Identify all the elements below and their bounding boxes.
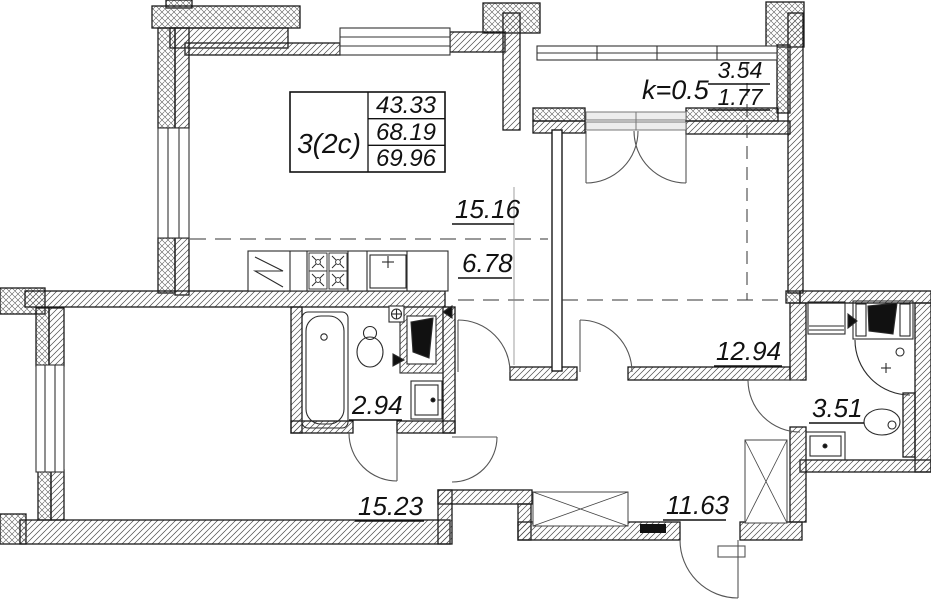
partition-wall — [552, 130, 562, 371]
toilet-icon — [357, 327, 383, 368]
entrance-threshold — [640, 524, 666, 533]
kitchen-counter — [248, 251, 448, 291]
wardrobes — [533, 440, 787, 526]
bedroom-door — [580, 320, 632, 372]
label-shower-room-area: 3.51 — [812, 393, 863, 423]
wardrobe-hall — [533, 492, 628, 526]
bathtub-icon — [302, 312, 348, 428]
corridor-door — [458, 320, 510, 372]
balcony-coefficient: k=0.5 — [642, 75, 710, 105]
balcony-area-reduced: 1.77 — [718, 84, 764, 110]
label-bathroom-area: 2.94 — [351, 390, 403, 420]
kitchen-sink-icon — [370, 255, 406, 288]
balcony-area-full: 3.54 — [718, 57, 763, 83]
title-block: 3(2c) 43.33 68.19 69.96 — [290, 92, 445, 172]
vent-symbol — [389, 306, 404, 322]
toilet-icon — [864, 409, 900, 435]
wardrobe-entry — [745, 440, 787, 523]
label-kitchen-living-area: 15.16 — [455, 194, 521, 224]
window-living-left — [36, 365, 64, 472]
living-area-value: 43.33 — [376, 92, 437, 119]
label-hallway-area: 11.63 — [666, 490, 730, 520]
shower-room-door — [748, 380, 800, 432]
label-bedroom-area: 12.94 — [716, 336, 781, 366]
total-area-value: 69.96 — [376, 145, 437, 172]
entrance-door — [680, 540, 745, 598]
corner-sink-icon — [853, 301, 913, 395]
shower-room-fixtures — [806, 301, 913, 460]
balcony-label: k=0.5 3.54 1.77 — [642, 57, 770, 110]
label-living-room-area: 15.23 — [358, 491, 424, 521]
window-kitchen-left — [158, 128, 189, 238]
vent-shaft — [400, 307, 443, 373]
window-kitchen-top — [340, 28, 450, 55]
bathroom-sink-icon — [411, 381, 444, 419]
bathroom-door — [349, 433, 397, 481]
floor-plan-drawing: 15.16 6.78 12.94 2.94 3.51 15.23 11.63 k… — [0, 0, 931, 600]
shower-tray-icon — [806, 432, 845, 460]
unit-label: 3(2c) — [297, 128, 361, 159]
label-kitchen-zone-area: 6.78 — [462, 248, 513, 278]
area-without-balcony-value: 68.19 — [376, 119, 436, 146]
balcony-french-door — [586, 131, 686, 183]
balcony-door-frame — [586, 112, 686, 130]
floor-plan-page: 15.16 6.78 12.94 2.94 3.51 15.23 11.63 k… — [0, 0, 931, 600]
washing-machine-icon — [808, 302, 845, 334]
living-room-door — [452, 437, 497, 482]
